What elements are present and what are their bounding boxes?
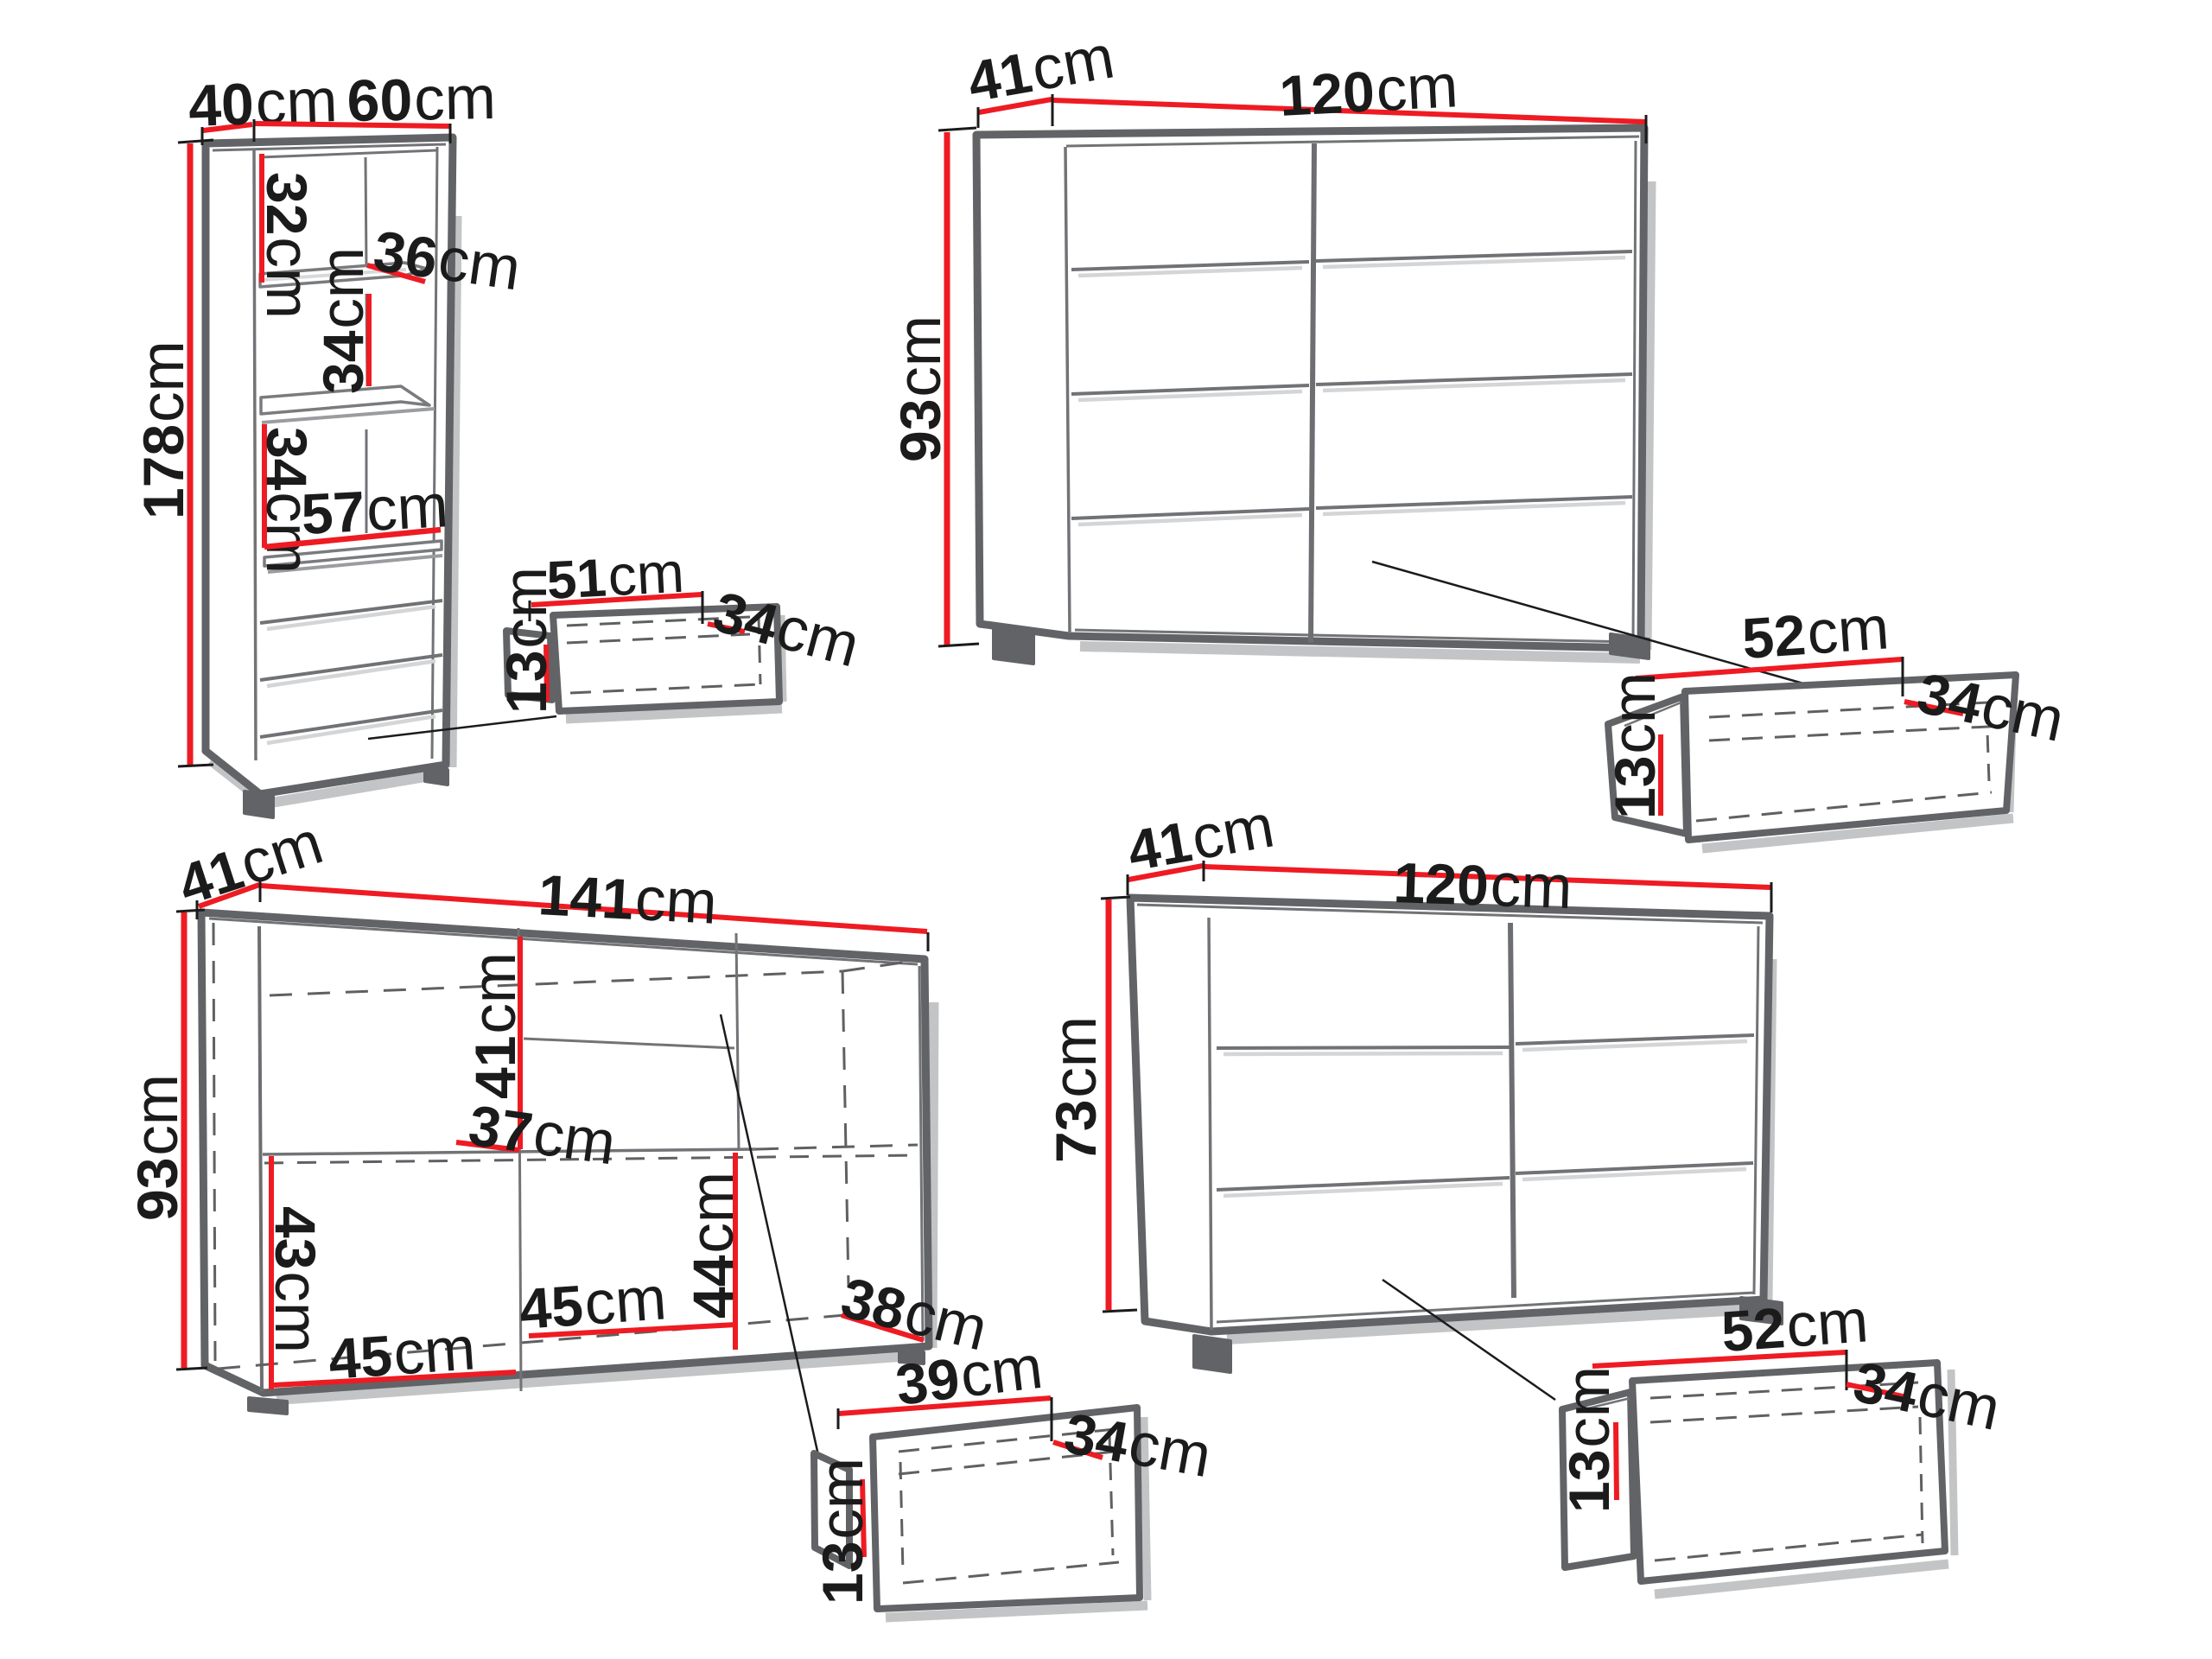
svg-text:52cm: 52cm bbox=[1740, 594, 1891, 672]
svg-text:45cm: 45cm bbox=[327, 1314, 478, 1393]
svg-text:13cm: 13cm bbox=[808, 1458, 876, 1605]
svg-text:13cm: 13cm bbox=[1600, 672, 1669, 819]
svg-text:43cm: 43cm bbox=[262, 1206, 330, 1353]
svg-text:45cm: 45cm bbox=[518, 1264, 669, 1343]
svg-text:13cm: 13cm bbox=[1554, 1366, 1623, 1513]
svg-text:44cm: 44cm bbox=[678, 1172, 747, 1319]
svg-text:120cm: 120cm bbox=[1392, 848, 1573, 922]
svg-text:178cm: 178cm bbox=[129, 340, 197, 519]
svg-text:41cm: 41cm bbox=[461, 952, 529, 1099]
svg-text:13cm: 13cm bbox=[492, 567, 560, 714]
svg-text:57cm: 57cm bbox=[300, 472, 450, 548]
svg-text:73cm: 73cm bbox=[1041, 1016, 1109, 1163]
svg-text:60cm: 60cm bbox=[346, 64, 497, 135]
svg-text:52cm: 52cm bbox=[1719, 1287, 1871, 1365]
svg-text:141cm: 141cm bbox=[537, 860, 719, 938]
svg-text:40cm: 40cm bbox=[188, 67, 339, 140]
svg-text:34cm: 34cm bbox=[308, 247, 377, 394]
svg-text:93cm: 93cm bbox=[886, 315, 954, 462]
svg-text:51cm: 51cm bbox=[545, 540, 686, 611]
svg-text:93cm: 93cm bbox=[123, 1074, 191, 1221]
svg-text:120cm: 120cm bbox=[1278, 52, 1460, 130]
